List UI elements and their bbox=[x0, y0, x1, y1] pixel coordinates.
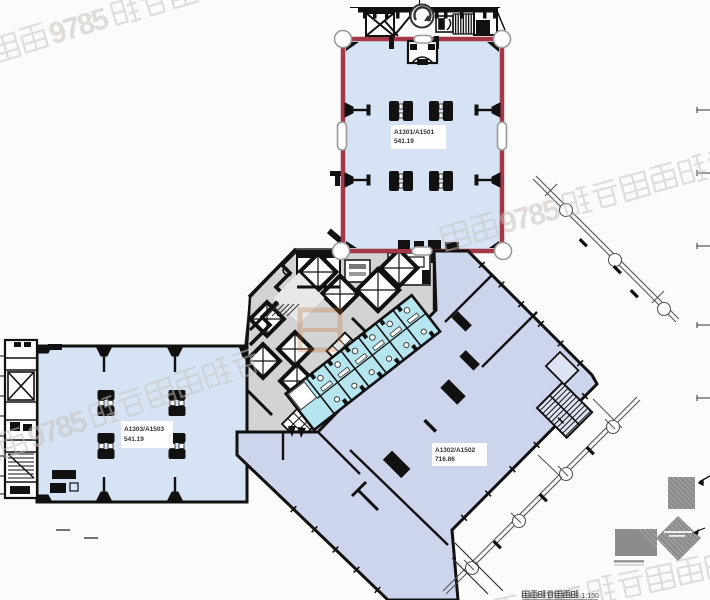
svg-text:541.19: 541.19 bbox=[124, 436, 144, 443]
svg-text:A1302/A1502: A1302/A1502 bbox=[435, 447, 475, 454]
svg-text:A1303/A1503: A1303/A1503 bbox=[124, 426, 164, 433]
svg-text:A1301/A1501: A1301/A1501 bbox=[394, 129, 434, 136]
svg-text:1:150: 1:150 bbox=[581, 593, 599, 600]
svg-text:716.86: 716.86 bbox=[435, 456, 455, 463]
svg-text:541.19: 541.19 bbox=[394, 138, 414, 145]
